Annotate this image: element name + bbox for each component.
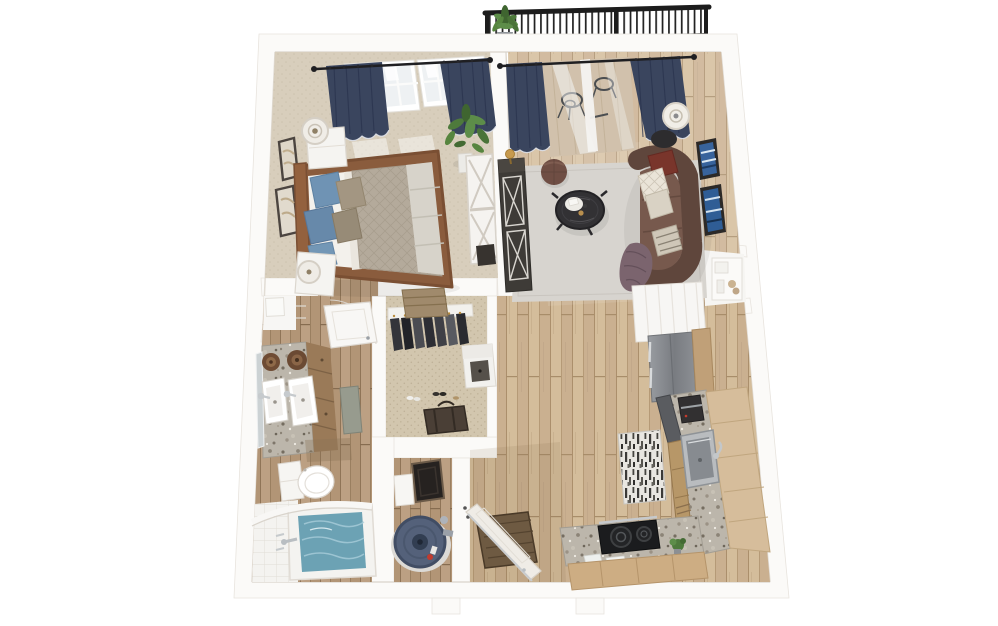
- wall-utility-entry: [452, 458, 470, 582]
- sliding-glass-door: [542, 57, 636, 157]
- floor-shade-near-toilet: [305, 438, 352, 462]
- floor-plan-svg: [0, 0, 998, 626]
- entry-wall-stub-right: [576, 598, 604, 614]
- bathroom-door-slab: [324, 302, 377, 348]
- storage-basket: [402, 288, 448, 318]
- refrigerator: [648, 332, 696, 402]
- nightstand-bottom: [295, 252, 336, 296]
- entry-wall-stub-left: [432, 598, 460, 614]
- fridge-handle-2: [651, 368, 652, 388]
- bathtub: [252, 500, 376, 582]
- bath-mat: [340, 386, 362, 434]
- bathroom-door: [324, 300, 377, 348]
- pillow-taupe-1: [336, 177, 366, 210]
- wall-bath-closet: [372, 296, 386, 437]
- linen-box: [266, 298, 285, 317]
- niche-box: [715, 262, 728, 273]
- door-knob: [522, 568, 526, 572]
- coffee-maker: [678, 395, 704, 423]
- storage-niche: [712, 258, 742, 300]
- barn-door-gap: [476, 244, 496, 266]
- niche-towel-2: [733, 288, 740, 295]
- tray-cup: [578, 210, 583, 215]
- framed-panel: [412, 460, 444, 502]
- vanity-mirror: [256, 352, 264, 448]
- closet-dresser: [462, 344, 496, 388]
- pillow-blue-2: [304, 206, 339, 244]
- floor-plan-render: [0, 0, 998, 626]
- tall-pantry-cabinet: [692, 328, 714, 396]
- door-hinge-1: [463, 506, 467, 510]
- cooktop: [598, 517, 660, 554]
- fridge-handle-1: [650, 342, 651, 362]
- heater-warning-tag: [427, 554, 433, 560]
- brass-accent-lamp: [506, 150, 515, 159]
- niche-bottle: [717, 280, 724, 293]
- kitchen-runner-rug: [618, 430, 666, 504]
- tray-vase: [583, 204, 587, 208]
- heater-pipe-1: [440, 516, 448, 524]
- niche-towel-1: [728, 280, 736, 288]
- sliding-barn-door: [466, 154, 497, 266]
- pillow-taupe-2: [332, 208, 362, 243]
- storage-box: [394, 474, 414, 506]
- burner-small: [637, 527, 651, 541]
- burner-large: [611, 527, 631, 547]
